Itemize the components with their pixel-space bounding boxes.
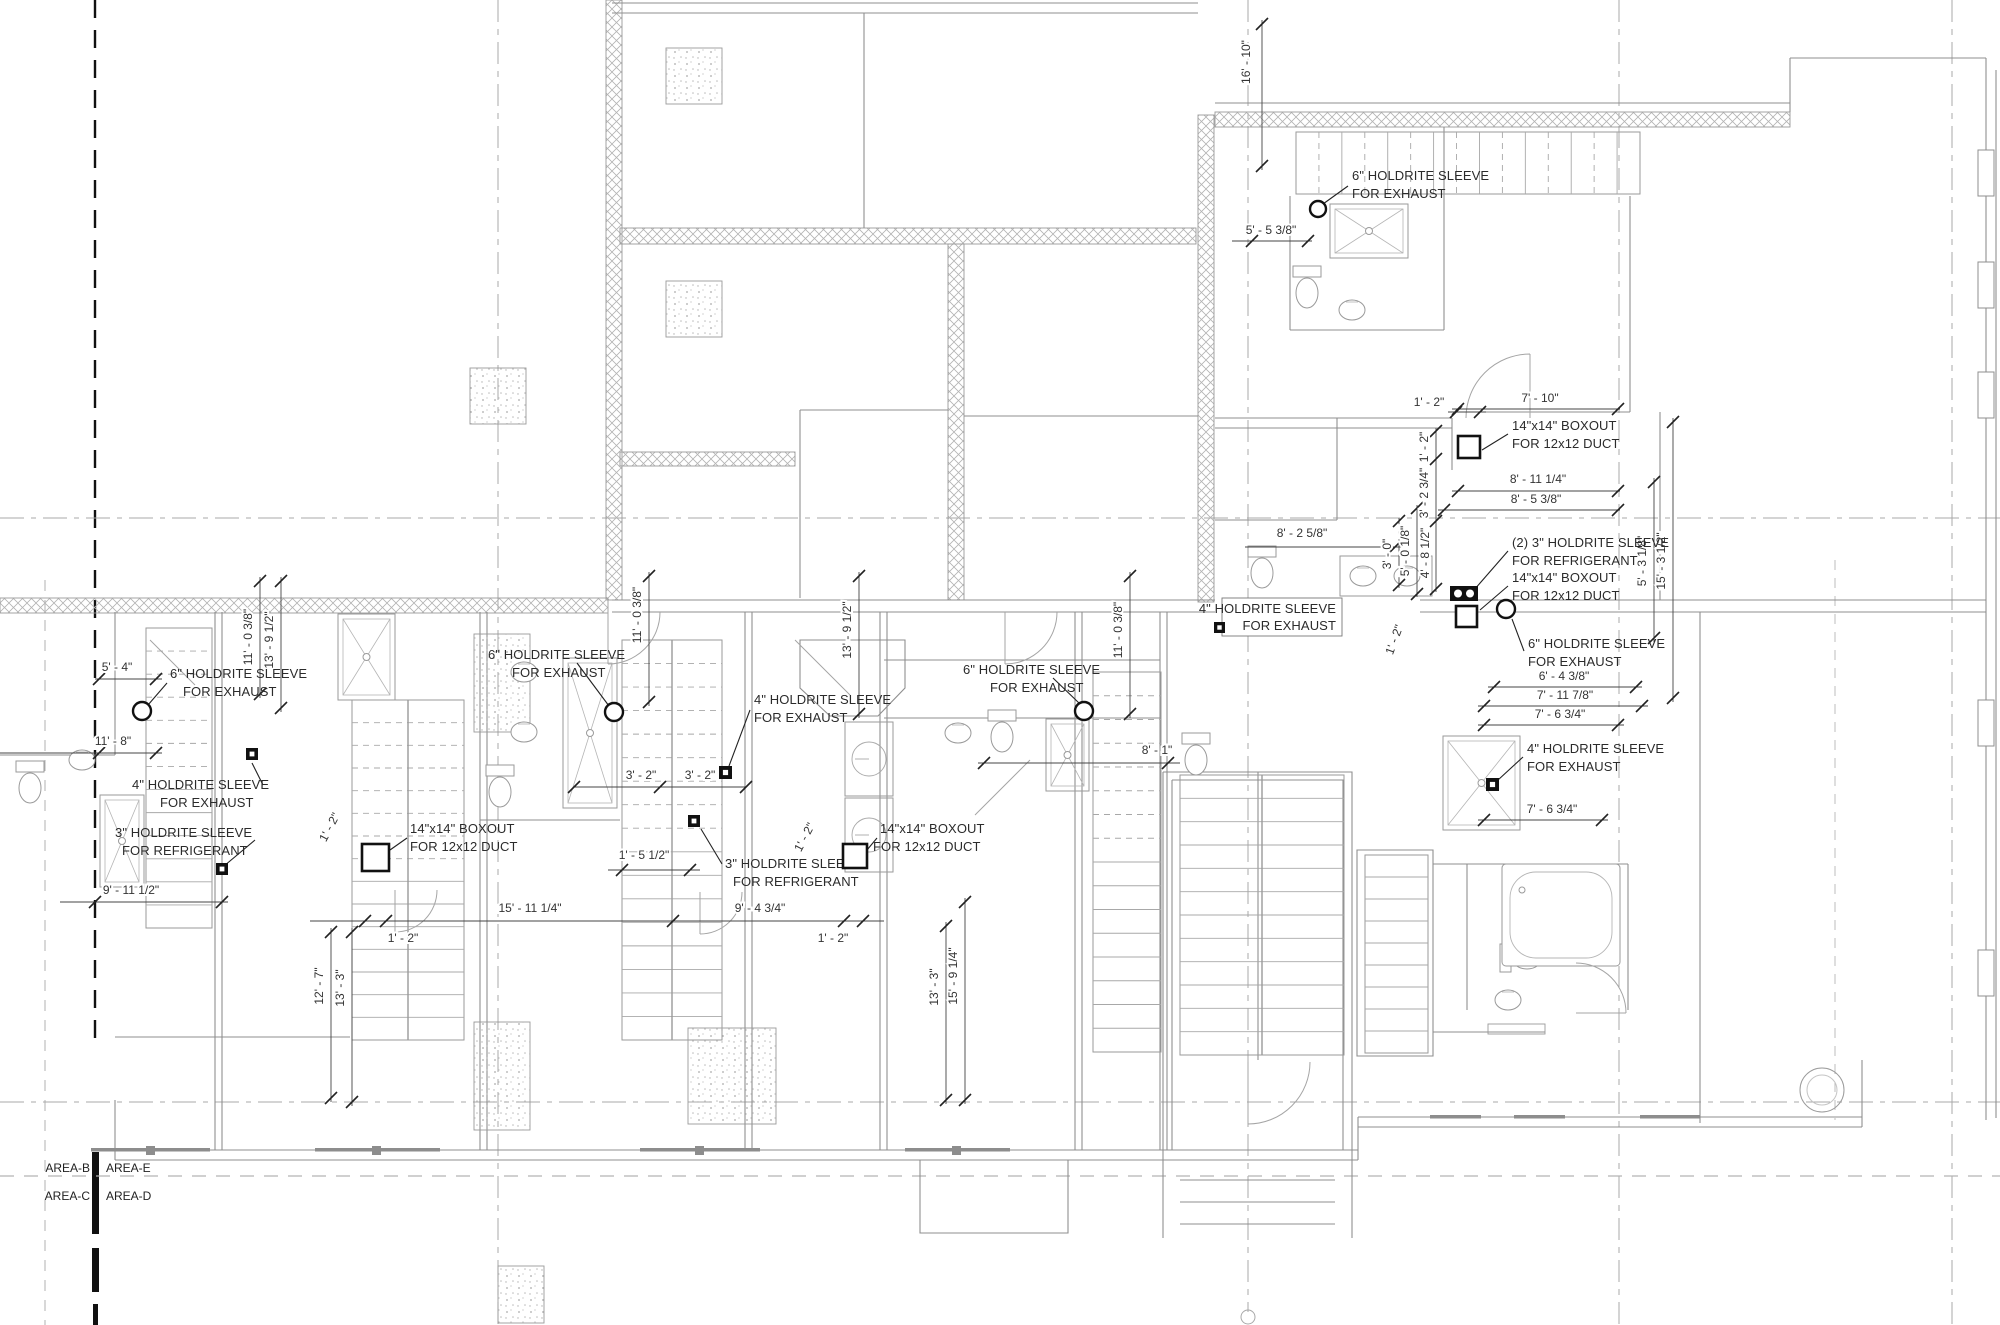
callout-leader bbox=[729, 710, 750, 766]
dimension-text: 13' - 3" bbox=[927, 968, 941, 1005]
dimension-text: 5' - 5 3/8" bbox=[1246, 223, 1297, 237]
callout: 3" HOLDRITE SLEEVEFOR REFRIGERANT bbox=[115, 825, 255, 875]
area-label-e: AREA-E bbox=[106, 1161, 151, 1175]
callout-text: 6" HOLDRITE SLEEVE bbox=[170, 666, 307, 681]
dimension-text: 7' - 6 3/4" bbox=[1535, 707, 1586, 721]
callout-text: FOR EXHAUST bbox=[1242, 618, 1336, 633]
callout-text: FOR EXHAUST bbox=[1527, 759, 1621, 774]
callout-leader bbox=[1512, 619, 1524, 651]
dimension-text: 5' - 0 1/8" bbox=[1398, 526, 1412, 577]
callout-leader bbox=[390, 838, 407, 850]
shower-fixture bbox=[100, 795, 144, 887]
callout: 3" HOLDRITE SLEEVEFOR REFRIGERANT bbox=[688, 815, 862, 889]
duct-boxout-node bbox=[362, 844, 389, 871]
round-column-inner bbox=[1807, 1075, 1837, 1105]
dimension-line bbox=[1124, 570, 1136, 720]
callout-leader bbox=[148, 683, 167, 705]
dimension-text: 6' - 4 3/8" bbox=[1539, 669, 1590, 683]
dimension-text: 16' - 10" bbox=[1239, 40, 1253, 84]
sink-fixture bbox=[1350, 566, 1376, 586]
dimension-text: 3' - 0" bbox=[1380, 539, 1394, 570]
duct-boxout-node bbox=[1456, 606, 1477, 627]
dimension-text: 7' - 6 3/4" bbox=[1527, 802, 1578, 816]
dimension-text: 12' - 7" bbox=[312, 967, 326, 1004]
callout-text: FOR EXHAUST bbox=[183, 684, 277, 699]
door-swing bbox=[1005, 612, 1057, 664]
hatched-walls bbox=[0, 0, 1790, 613]
dimension-line bbox=[568, 781, 752, 793]
dimension-text: 3' - 2" bbox=[626, 768, 657, 782]
callout-text: 14"x14" BOXOUT bbox=[880, 821, 985, 836]
callout-text: 3" HOLDRITE SLEEVE bbox=[115, 825, 252, 840]
dimension-text: 1' - 2" bbox=[1414, 395, 1445, 409]
dimension-text: 1' - 2" bbox=[791, 820, 818, 854]
dimension-text: 8' - 5 3/8" bbox=[1511, 492, 1562, 506]
dimension-text: 15' - 9 1/4" bbox=[946, 947, 960, 1004]
duct-boxout-node bbox=[843, 844, 867, 868]
dimension-text: 1' - 5 1/2" bbox=[619, 848, 670, 862]
toilet-fixture bbox=[1248, 546, 1276, 588]
dimension-line bbox=[959, 896, 971, 1106]
callout-text: (2) 3" HOLDRITE SLEEVE bbox=[1512, 535, 1669, 550]
fixtures-layer bbox=[16, 204, 1620, 1034]
dimension-text: 1' - 2" bbox=[316, 810, 343, 844]
dimension-text: 11' - 8" bbox=[95, 734, 131, 748]
callout-leader bbox=[701, 829, 722, 864]
callout: 6" HOLDRITE SLEEVEFOR EXHAUST bbox=[1497, 600, 1665, 669]
toilet-fixture bbox=[1182, 733, 1210, 775]
floor-plan-canvas: 16' - 10"5' - 5 3/8"7' - 10"1' - 2"8' - … bbox=[0, 0, 2000, 1325]
callout-text: 4" HOLDRITE SLEEVE bbox=[1199, 601, 1336, 616]
dimension-text: 11' - 0 3/8" bbox=[241, 609, 255, 665]
callout-leader bbox=[1498, 757, 1523, 780]
dimension-text: 7' - 10" bbox=[1521, 391, 1558, 405]
callout-text: 4" HOLDRITE SLEEVE bbox=[1527, 741, 1664, 756]
floor-plan-svg: 16' - 10"5' - 5 3/8"7' - 10"1' - 2"8' - … bbox=[0, 0, 2000, 1325]
sleeve-circle-node bbox=[1075, 702, 1093, 720]
dimension-text: 1' - 2" bbox=[818, 931, 849, 945]
callout-text: FOR REFRIGERANT bbox=[1512, 553, 1638, 568]
dimension-line bbox=[275, 575, 287, 714]
sink-fixture bbox=[945, 723, 971, 743]
dimension-text: 11' - 0 3/8" bbox=[630, 587, 644, 643]
matchline-bar bbox=[92, 1152, 99, 1234]
dimension-text: 8' - 1" bbox=[1142, 743, 1173, 757]
callout-text: FOR 12x12 DUCT bbox=[410, 839, 518, 854]
callout: 14"x14" BOXOUTFOR 12x12 DUCT bbox=[1456, 570, 1620, 627]
callout-text: FOR 12x12 DUCT bbox=[1512, 588, 1620, 603]
callout-text: FOR REFRIGERANT bbox=[733, 874, 859, 889]
dimension-text: 13' - 3" bbox=[333, 969, 347, 1006]
callout-text: 6" HOLDRITE SLEEVE bbox=[488, 647, 625, 662]
washer-fixture bbox=[845, 722, 893, 796]
dimension-text: 4' - 8 1/2" bbox=[1418, 528, 1432, 579]
callout-text: 14"x14" BOXOUT bbox=[410, 821, 515, 836]
sleeve-circle-node bbox=[1310, 201, 1326, 217]
callout-text: FOR 12x12 DUCT bbox=[1512, 436, 1620, 451]
shower-fixture bbox=[338, 614, 395, 700]
callout: 6" HOLDRITE SLEEVEFOR EXHAUST bbox=[1310, 168, 1489, 217]
callout-text: 6" HOLDRITE SLEEVE bbox=[1528, 636, 1665, 651]
callout: 4" HOLDRITE SLEEVEFOR EXHAUST bbox=[1199, 598, 1342, 636]
callout-text: FOR 12x12 DUCT bbox=[873, 839, 981, 854]
callout-text: FOR EXHAUST bbox=[990, 680, 1084, 695]
window-sills bbox=[91, 1115, 1700, 1155]
toilet-fixture bbox=[988, 710, 1016, 752]
stair-run bbox=[1180, 775, 1344, 1055]
callout-leader bbox=[1482, 434, 1508, 450]
dimension-text: 9' - 11 1/2" bbox=[103, 883, 159, 897]
dimension-text: 11' - 0 3/8" bbox=[1111, 602, 1125, 658]
sink-fixture bbox=[1495, 990, 1521, 1010]
callout-text: FOR EXHAUST bbox=[1352, 186, 1446, 201]
callout-text: FOR EXHAUST bbox=[160, 795, 254, 810]
dimension-text: 3' - 2" bbox=[685, 768, 716, 782]
doors-layer bbox=[150, 354, 1626, 1124]
callout-text: FOR EXHAUST bbox=[1528, 654, 1622, 669]
grid-bubble bbox=[1241, 1310, 1255, 1324]
dimension-line bbox=[310, 915, 884, 927]
toilet-fixture bbox=[16, 761, 44, 803]
callout-text: 14"x14" BOXOUT bbox=[1512, 570, 1617, 585]
dimension-line bbox=[60, 896, 228, 908]
duct-boxout-node bbox=[1458, 436, 1480, 458]
door-swing bbox=[395, 890, 437, 932]
callout-text: FOR EXHAUST bbox=[512, 665, 606, 680]
matchline-bar bbox=[92, 1248, 99, 1292]
sleeve-circle-node bbox=[133, 702, 151, 720]
callout-leader bbox=[1323, 186, 1348, 204]
entry-stoops bbox=[920, 1158, 1352, 1238]
area-label-d: AREA-D bbox=[106, 1189, 152, 1203]
toilet-fixture bbox=[486, 765, 514, 807]
callout-text: 6" HOLDRITE SLEEVE bbox=[963, 662, 1100, 677]
area-label-c: AREA-C bbox=[45, 1189, 91, 1203]
dimension-text: 1' - 2" bbox=[1382, 623, 1406, 657]
callout-leader bbox=[1474, 551, 1508, 590]
matchline-bar bbox=[93, 1304, 98, 1325]
dimension-text: 13' - 9 1/2" bbox=[840, 601, 854, 658]
dimension-text: 7' - 11 7/8" bbox=[1537, 688, 1593, 702]
callout-text: 4" HOLDRITE SLEEVE bbox=[754, 692, 891, 707]
area-label-b: AREA-B bbox=[45, 1161, 90, 1175]
walls bbox=[0, 3, 1996, 1238]
dimension-text: 9' - 4 3/4" bbox=[735, 901, 786, 915]
dimension-text: 1' - 2" bbox=[1417, 432, 1431, 463]
shower-fixture bbox=[1443, 736, 1520, 830]
shower-fixture bbox=[1330, 204, 1408, 258]
stair-run bbox=[1365, 855, 1428, 1053]
sleeve-circle-node bbox=[1497, 600, 1515, 618]
sink-fixture bbox=[511, 722, 537, 742]
stair-run bbox=[1093, 672, 1161, 1052]
callout: 6" HOLDRITE SLEEVEFOR EXHAUST bbox=[963, 662, 1100, 720]
dimension-text: 3' - 2 3/4" bbox=[1417, 468, 1431, 519]
callout-text: FOR REFRIGERANT bbox=[122, 843, 248, 858]
callout-text: 14"x14" BOXOUT bbox=[1512, 418, 1617, 433]
facade-walls bbox=[115, 1060, 1862, 1160]
sleeve-circle-node bbox=[605, 703, 623, 721]
dimension-line bbox=[1256, 18, 1268, 172]
dimension-line bbox=[325, 926, 337, 1104]
dimension-text: 13' - 9 1/2" bbox=[262, 611, 276, 668]
bathtub-fixture bbox=[1502, 864, 1620, 966]
door-swing bbox=[1248, 1062, 1310, 1124]
dimension-line bbox=[1667, 416, 1679, 704]
dimension-text: 8' - 2 5/8" bbox=[1277, 526, 1328, 540]
stair-run bbox=[1296, 132, 1640, 194]
callout: 14"x14" BOXOUTFOR 12x12 DUCT bbox=[843, 821, 985, 868]
callout-text: FOR EXHAUST bbox=[754, 710, 848, 725]
dimension-text: 8' - 11 1/4" bbox=[1510, 472, 1566, 486]
dimension-line bbox=[93, 673, 162, 685]
callout-text: 6" HOLDRITE SLEEVE bbox=[1352, 168, 1489, 183]
callout-text: 4" HOLDRITE SLEEVE bbox=[132, 777, 269, 792]
sink-fixture bbox=[1339, 300, 1365, 320]
callout: 14"x14" BOXOUTFOR 12x12 DUCT bbox=[362, 821, 518, 871]
dimension-text: 1' - 2" bbox=[388, 931, 419, 945]
callout: 14"x14" BOXOUTFOR 12x12 DUCT bbox=[1458, 418, 1620, 458]
callout: 4" HOLDRITE SLEEVEFOR EXHAUST bbox=[1486, 741, 1664, 791]
door-swing bbox=[1466, 354, 1530, 418]
toilet-fixture bbox=[1293, 266, 1321, 308]
dimension-text: 15' - 11 1/4" bbox=[498, 901, 561, 915]
dimension-text: 5' - 4" bbox=[102, 660, 133, 674]
